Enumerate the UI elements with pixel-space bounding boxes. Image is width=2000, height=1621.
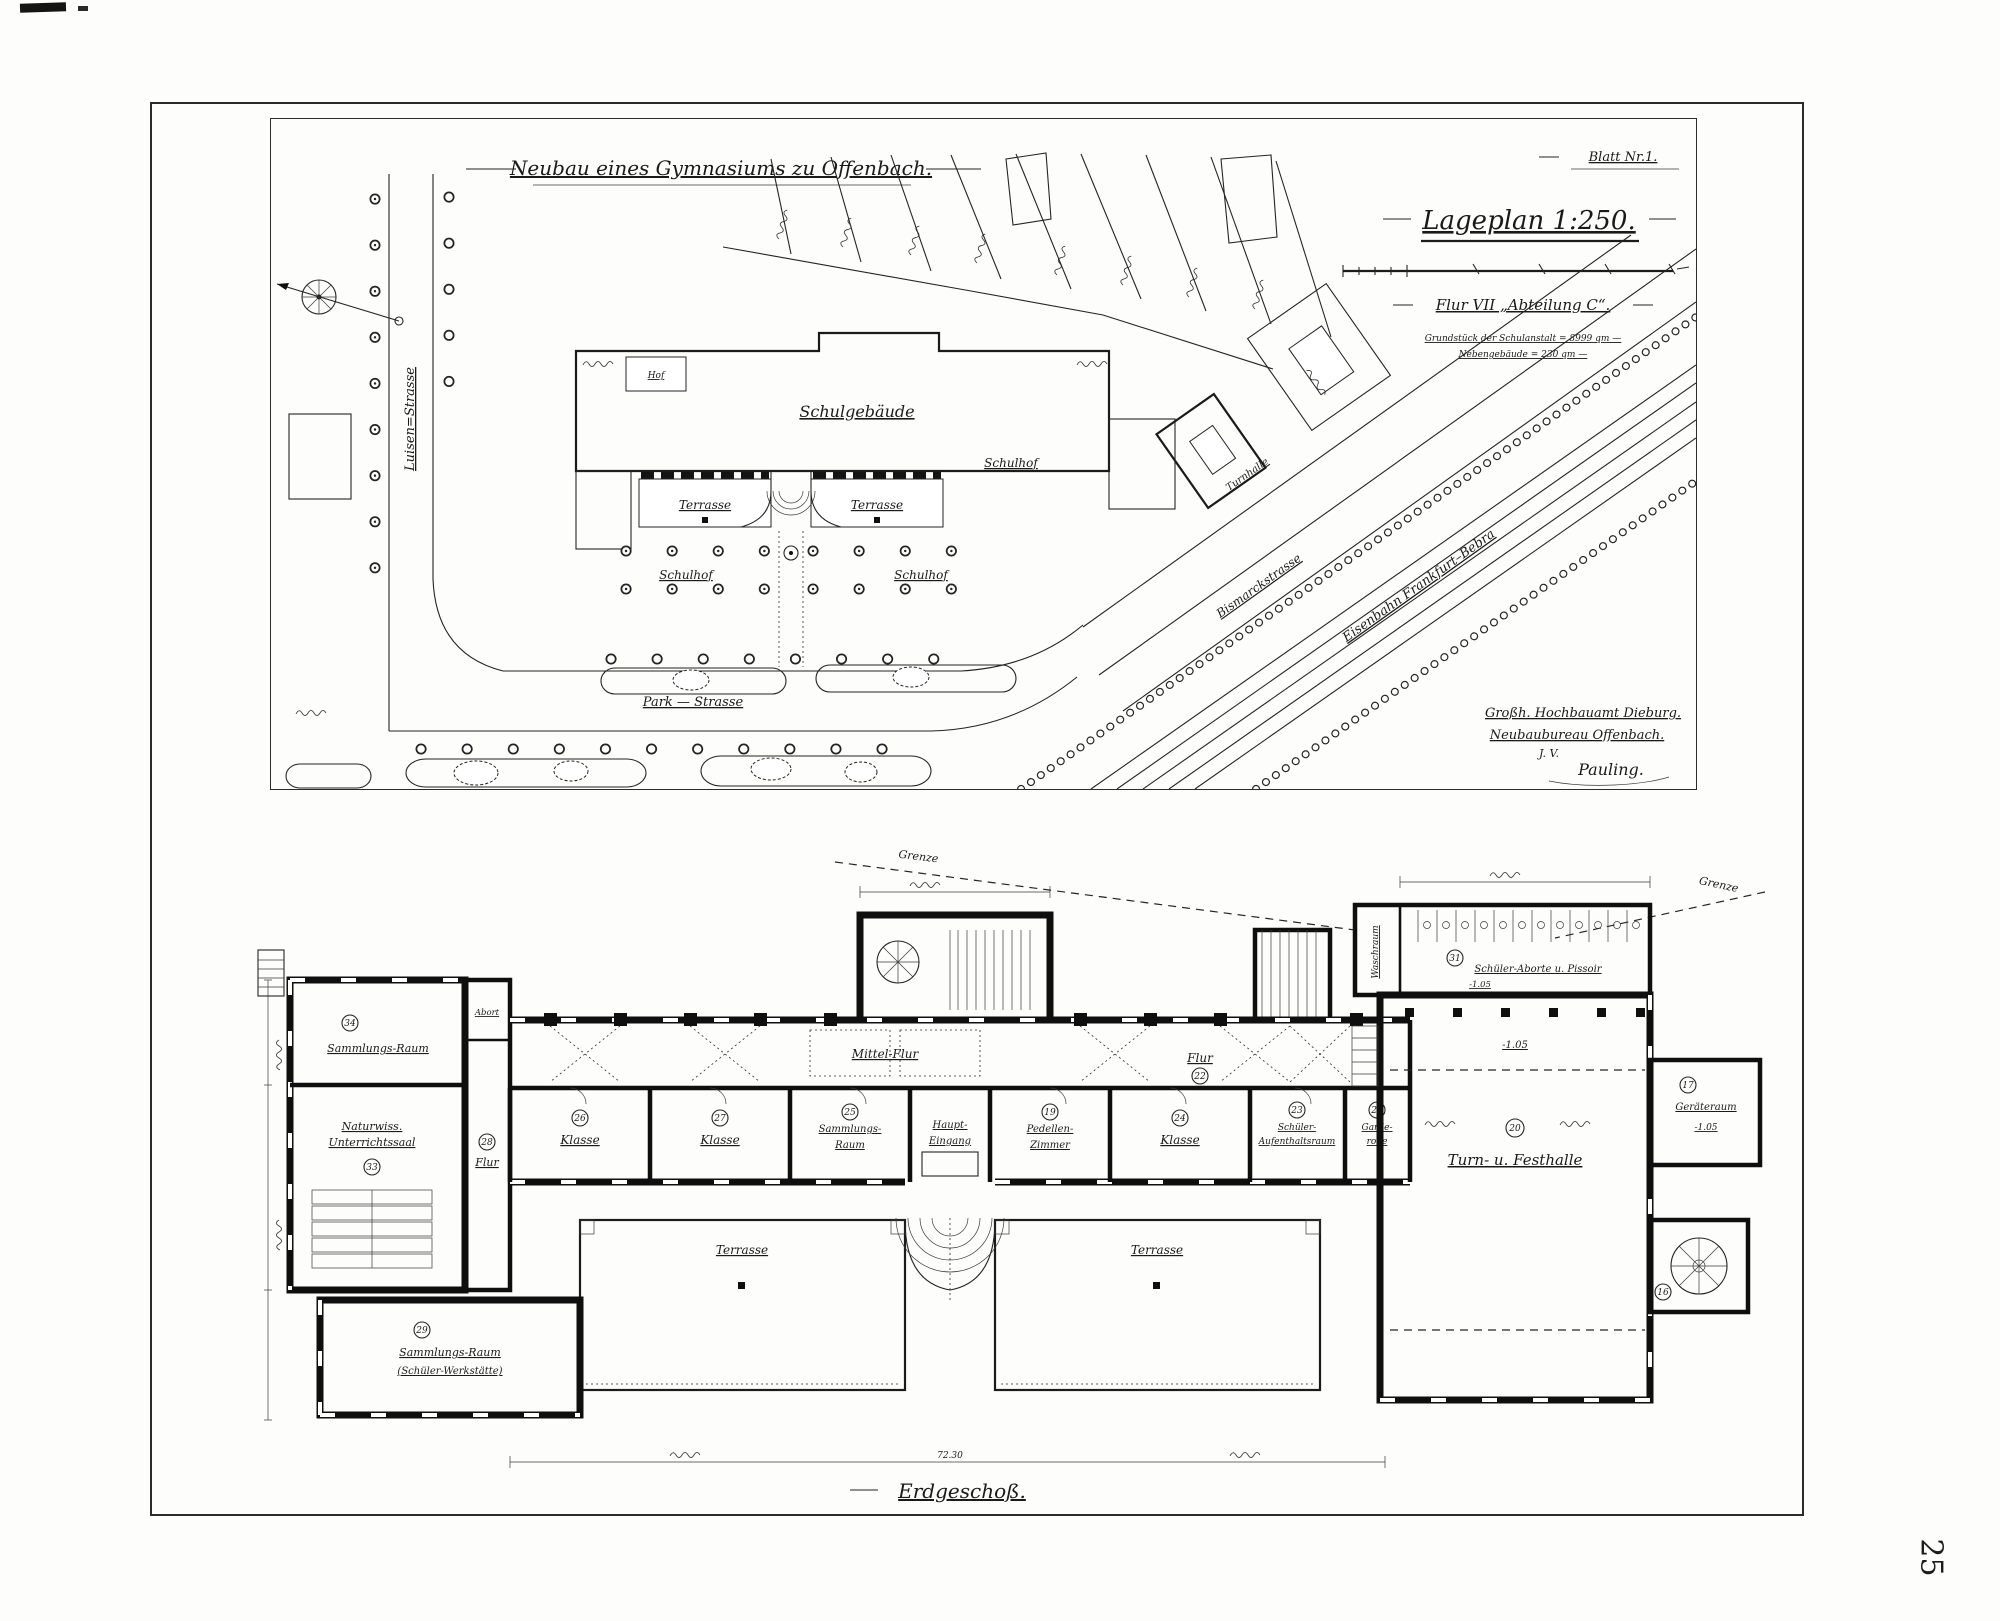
room-partitions [510, 1020, 1410, 1182]
planting-strips [286, 665, 1016, 788]
label-schulgebaeude: Schulgebäude [799, 402, 914, 421]
room-no-23: 23 [1290, 1106, 1303, 1116]
floor-plan-wrap: Grenze Grenze 72.30 [250, 830, 1770, 1510]
scanned-plate-page: Neubau eines Gymnasiums zu Offenbach. Bl… [0, 0, 2000, 1621]
room-aborte: Schüler-Aborte u. Pissoir [1474, 964, 1602, 975]
room-geraete-level: -1.05 [1694, 1123, 1717, 1133]
label-terrasse-left: Terrasse [679, 498, 731, 512]
label-grenze-left: Grenze [898, 848, 940, 866]
corridor-flur-left-no: 28 [480, 1138, 493, 1148]
room-klasse-1: Klasse [559, 1133, 599, 1147]
room-no-31: 31 [1449, 954, 1460, 964]
plate-title-group: Neubau eines Gymnasiums zu Offenbach. [466, 156, 981, 185]
sheet-number: Blatt Nr.1. [1588, 150, 1658, 165]
neighbour-parcels [723, 153, 1331, 369]
room-halle: Turn- u. Festhalle [1448, 1151, 1583, 1169]
label-terrasse-right: Terrasse [851, 498, 903, 512]
room-klasse-3: Klasse [1159, 1133, 1199, 1147]
room-waschraum: Waschraum [1371, 925, 1381, 978]
wing-corridor: Abort 28 Flur [465, 980, 510, 1290]
label-schulhof-left: Schulhof [659, 568, 715, 582]
garden-steps [896, 1218, 1004, 1300]
area-note-1: Grundstück der Schulanstalt = 8999 qm — [1425, 334, 1622, 344]
scan-artifact [20, 2, 66, 13]
room-sammlung-top: Sammlungs-Raum [327, 1042, 429, 1055]
street-luisen: Luisen=Strasse [289, 174, 503, 731]
corridor-flur-right: Flur [1186, 1051, 1214, 1065]
signature-name: Pauling. [1577, 760, 1644, 779]
left-wing: 34 Sammlungs-Raum Naturwiss. Unterrichts… [290, 980, 465, 1290]
room-abort: Abort [474, 1008, 500, 1018]
terrace-left-label: Terrasse [716, 1243, 768, 1257]
room-no-19: 19 [1044, 1108, 1056, 1118]
toilet-block: 31 Schüler-Aborte u. Pissoir -1.05 Wasch… [1355, 905, 1650, 995]
terraces: Terrasse Terrasse [580, 1218, 1320, 1390]
overall-dimension: 72.30 [937, 1451, 963, 1461]
room-no-29: 29 [415, 1326, 428, 1336]
festival-hall: -1.05 20 Turn- u. Festhalle [1380, 995, 1650, 1400]
street-park: Park — Strasse [389, 625, 1083, 749]
room-pedell-1: Pedellen- [1026, 1124, 1074, 1135]
room-aborte-level: -1.05 [1469, 980, 1491, 990]
siteplan-title: Lageplan 1:250. [1421, 206, 1635, 236]
room-aufenthalt-1: Schüler- [1278, 1123, 1316, 1133]
terrace-right-label: Terrasse [1131, 1243, 1183, 1257]
label-schulhof-right: Schulhof [984, 456, 1040, 470]
neighbour-factory [1248, 284, 1391, 431]
gym-annex [1157, 394, 1266, 508]
room-werkstatt-1: Sammlungs-Raum [399, 1346, 501, 1359]
corridor-flur-left: Flur [474, 1156, 499, 1169]
neighbour-building-west [289, 414, 351, 499]
dimension-lines: 72.30 [264, 873, 1650, 1469]
room-no-33: 33 [366, 1163, 378, 1173]
section-note-group: Flur VII „Abteilung C“. Grundstück der S… [1393, 296, 1653, 360]
label-grenze-right: Grenze [1698, 874, 1740, 895]
room-no-25: 25 [843, 1108, 856, 1118]
label-turnhalle: Turnhalle [1224, 456, 1271, 493]
section-line: Flur VII „Abteilung C“. [1435, 296, 1611, 314]
room-geraete: Geräteraum [1675, 1102, 1736, 1113]
site-plan: Neubau eines Gymnasiums zu Offenbach. Bl… [271, 119, 1696, 789]
room-eingang-1: Haupt- [932, 1120, 969, 1131]
room-no-27: 27 [713, 1114, 726, 1124]
room-sammlung-mid-2: Raum [834, 1140, 865, 1151]
corridor-vault-pattern [550, 1026, 1350, 1082]
ground-floor-plan: Grenze Grenze 72.30 [250, 830, 1770, 1510]
room-aufenthalt-2: Aufenthaltsraum [1258, 1137, 1336, 1147]
label-hof: Hof [647, 371, 666, 381]
outside-stair [258, 950, 284, 996]
signature-iv: J. V. [1537, 747, 1559, 760]
site-plan-box: Neubau eines Gymnasiums zu Offenbach. Bl… [270, 118, 1697, 790]
boundary-lines: Grenze Grenze [835, 848, 1765, 938]
toilet-stalls [1418, 910, 1640, 942]
stair-pavilion [860, 915, 1050, 1020]
room-eingang-2: Eingang [928, 1136, 971, 1147]
building-terraces: Terrasse Terrasse [639, 471, 943, 527]
page-number: 25 [1914, 1538, 1949, 1576]
label-park-strasse: Park — Strasse [642, 695, 744, 710]
room-no-24: 24 [1173, 1114, 1186, 1124]
floorplan-title: Erdgeschoß. [897, 1479, 1026, 1503]
scan-artifact [78, 6, 88, 11]
neighbour-building [1006, 153, 1051, 225]
floorplan-title-group: Erdgeschoß. [850, 1479, 1026, 1503]
room-no-17: 17 [1682, 1081, 1694, 1091]
area-note-2: Nebengebäude = 230 qm — [1458, 350, 1588, 360]
room-sammlung-mid-1: Sammlungs- [819, 1124, 882, 1135]
lecture-seating [312, 1190, 432, 1268]
room-naturwiss-1: Naturwiss. [341, 1120, 403, 1133]
label-schulhof-mid: Schulhof [894, 568, 950, 582]
room-naturwiss-2: Unterrichtssaal [329, 1136, 416, 1149]
spiral-stair: 16 [1650, 1220, 1748, 1312]
hall-pillars [1405, 1008, 1645, 1017]
basement-stair [1352, 1026, 1378, 1086]
workshop-annex: 29 Sammlungs-Raum (Schüler-Werkstätte) [320, 1300, 580, 1415]
siteplan-title-group: Lageplan 1:250. [1383, 206, 1676, 241]
secondary-stair [1255, 930, 1330, 1020]
compass-rose [277, 280, 403, 325]
sheet-number-group: Blatt Nr.1. [1539, 150, 1679, 169]
room-no-34: 34 [344, 1019, 356, 1029]
room-no-20: 20 [1508, 1124, 1521, 1134]
scale-bar [1343, 264, 1689, 277]
room-klasse-2: Klasse [699, 1133, 739, 1147]
corridor-flur-right-no: 22 [1193, 1072, 1206, 1082]
signature-block: Großh. Hochbauamt Dieburg. Neubaubureau … [1485, 706, 1681, 785]
signature-office-2: Neubaubureau Offenbach. [1489, 728, 1665, 743]
equipment-room: 17 Geräteraum -1.05 [1650, 1060, 1760, 1165]
corridor-mittel-flur: Mittel-Flur [851, 1047, 920, 1061]
signature-office-1: Großh. Hochbauamt Dieburg. [1485, 706, 1681, 721]
label-railway: Eisenbahn Frankfurt–Bebra [1339, 527, 1498, 646]
hall-level: -1.05 [1502, 1040, 1528, 1051]
room-no-26: 26 [573, 1114, 586, 1124]
neighbour-building [1221, 155, 1277, 243]
room-no-16: 16 [1657, 1288, 1669, 1298]
label-luisen-strasse: Luisen=Strasse [403, 367, 418, 472]
plate-title: Neubau eines Gymnasiums zu Offenbach. [509, 156, 932, 180]
main-band: Mittel-Flur Flur 22 26 Klasse 27 K [510, 1013, 1410, 1182]
room-pedell-2: Zimmer [1029, 1140, 1071, 1151]
room-werkstatt-2: (Schüler-Werkstätte) [397, 1366, 502, 1377]
